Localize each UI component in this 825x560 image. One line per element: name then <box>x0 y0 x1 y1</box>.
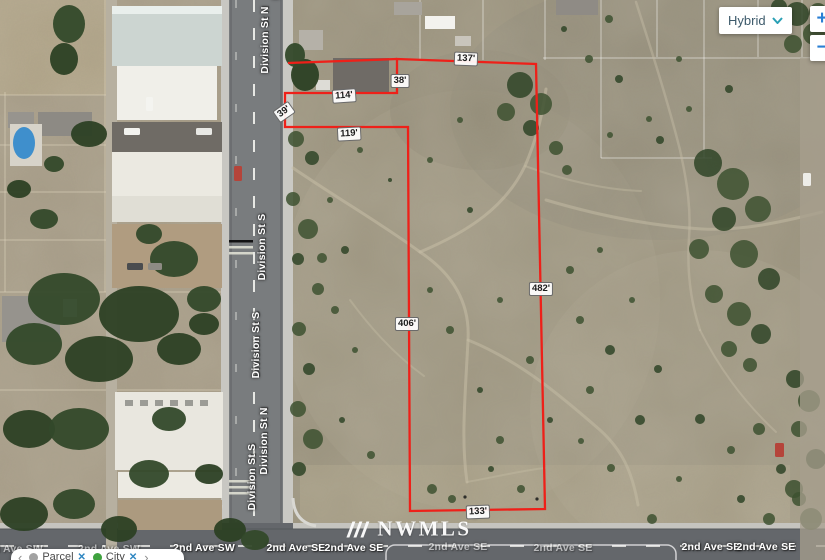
parcel-chip-dot <box>29 553 38 560</box>
street-label-2nd-ave-se: 2nd Ave SE <box>682 541 741 553</box>
parcel-layer-chip[interactable]: Parcel ✕ <box>29 552 86 560</box>
street-label-division-st-s: Division St S <box>256 214 268 281</box>
street-label-2nd-ave-se: 2nd Ave SE <box>737 541 796 553</box>
chevron-down-icon <box>772 17 783 24</box>
chevron-left-icon[interactable]: ‹ <box>18 552 22 560</box>
city-layer-chip[interactable]: City ✕ <box>93 552 137 560</box>
measurement-label: 114' <box>332 88 357 104</box>
zoom-in-button[interactable]: + <box>810 6 825 32</box>
street-label-2nd-ave-se: 2nd Ave SE <box>429 541 488 553</box>
watermark-text: NWMLS <box>377 517 471 541</box>
street-label-division-st-s: Division St S <box>250 312 262 379</box>
map-filter-bar: ‹ Parcel ✕ City ✕ › <box>11 549 184 560</box>
zoom-out-button[interactable]: − <box>810 35 825 61</box>
street-label-division-st-n: Division St N <box>258 407 270 474</box>
map-canvas[interactable]: 137' 38' 114' 39' 119' 406' 482' 133' Di… <box>0 0 825 560</box>
street-label-division-st-n: Division St N <box>259 6 271 73</box>
street-label-2nd-ave-se: 2nd Ave SE <box>325 542 384 554</box>
measurement-label: 119' <box>337 126 361 141</box>
map-type-selector[interactable]: Hybrid <box>719 7 792 34</box>
measurement-label: 482' <box>529 282 553 296</box>
parcel-chip-label: Parcel <box>42 552 73 560</box>
street-label-2nd-ave-se: 2nd Ave SE <box>267 542 326 554</box>
city-chip-label: City <box>106 552 125 560</box>
measurement-label: 137' <box>454 52 479 67</box>
nwmls-watermark: NWMLS™ <box>346 517 477 542</box>
city-chip-dot <box>93 553 102 560</box>
street-label-2nd-ave-se: 2nd Ave SE <box>534 542 593 554</box>
remove-icon[interactable]: ✕ <box>78 553 86 560</box>
nwmls-logo-icon <box>346 520 371 539</box>
satellite-imagery <box>0 0 825 560</box>
street-label-division-st-s: Division St S <box>246 444 258 511</box>
measurement-label: 38' <box>391 74 410 88</box>
chevron-right-icon[interactable]: › <box>144 552 148 560</box>
remove-icon[interactable]: ✕ <box>129 553 137 560</box>
measurement-label: 406' <box>395 317 419 331</box>
measurement-label: 133' <box>466 505 491 520</box>
map-type-value: Hybrid <box>728 13 766 28</box>
